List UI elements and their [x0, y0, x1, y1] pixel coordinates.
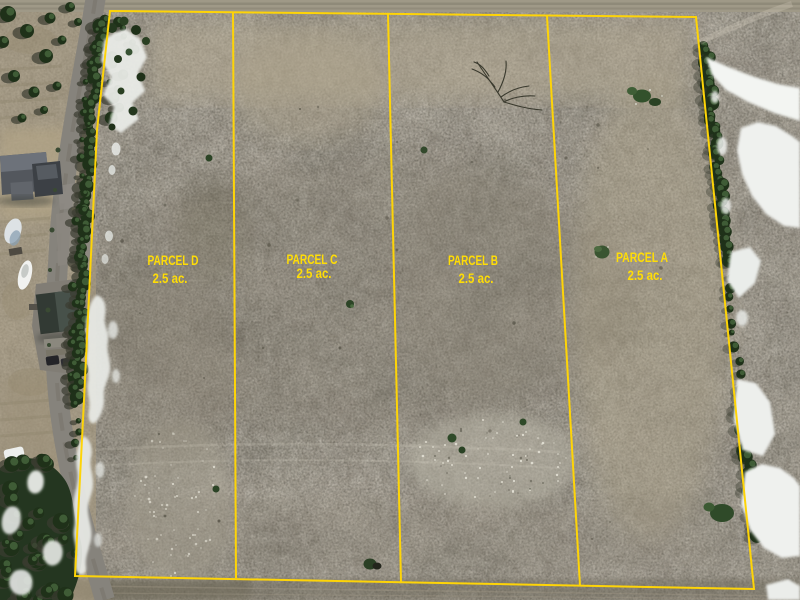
svg-text:PARCEL C: PARCEL C	[287, 252, 338, 267]
svg-text:PARCEL D: PARCEL D	[148, 253, 199, 268]
svg-text:2.5 ac.: 2.5 ac.	[153, 271, 188, 286]
svg-text:2.5 ac.: 2.5 ac.	[297, 266, 332, 281]
svg-text:PARCEL B: PARCEL B	[448, 253, 498, 268]
svg-text:2.5 ac.: 2.5 ac.	[628, 268, 663, 283]
svg-text:2.5 ac.: 2.5 ac.	[459, 271, 494, 286]
svg-text:PARCEL A: PARCEL A	[616, 250, 668, 265]
